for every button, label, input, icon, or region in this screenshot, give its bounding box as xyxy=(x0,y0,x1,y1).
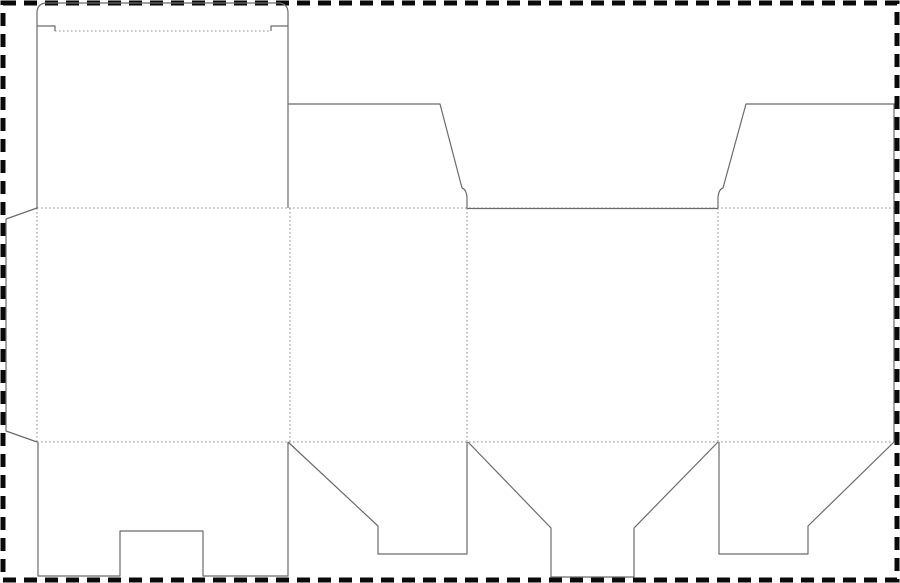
cut-line-top-dust-flap-left xyxy=(288,104,467,208)
cut-line-glue-tab xyxy=(6,208,37,442)
dieline-page xyxy=(0,0,900,583)
dieline-canvas xyxy=(0,0,900,583)
outer-dashed-border xyxy=(3,3,897,580)
cut-line-bottom-dust-flap-right xyxy=(719,442,894,554)
cut-line-left-panel-and-tuck-flap-outline xyxy=(37,3,288,208)
cut-line-tuck-flap-shoulder-right xyxy=(271,26,288,31)
cut-line-tuck-flap-shoulder-left xyxy=(37,26,55,31)
cut-line-top-dust-flap-right-and-right-edge xyxy=(718,104,894,442)
cut-line-bottom-dust-flap-left xyxy=(288,442,467,554)
cut-line-bottom-lock-flap-center xyxy=(468,442,718,577)
cut-line-bottom-lid-with-thumb-notch xyxy=(38,442,288,576)
